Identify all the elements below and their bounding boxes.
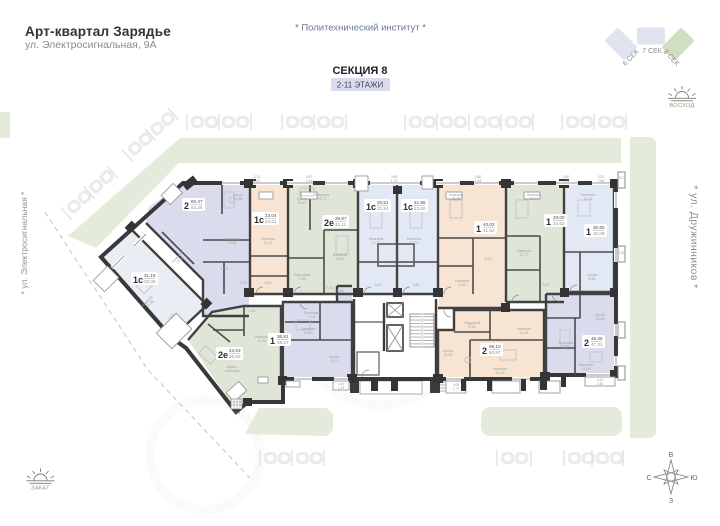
svg-text:С: С	[646, 475, 651, 482]
svg-text:* Политехнический институт *: * Политехнический институт *	[295, 23, 426, 34]
svg-text:62,25: 62,25	[191, 205, 203, 210]
svg-text:32,09: 32,09	[593, 231, 605, 236]
svg-text:1,56: 1,56	[619, 251, 625, 255]
svg-text:38,57: 38,57	[277, 340, 289, 345]
svg-text:11,84: 11,84	[562, 345, 571, 349]
svg-text:11,54: 11,54	[584, 197, 593, 201]
svg-text:8,66: 8,66	[589, 277, 596, 281]
svg-text:1: 1	[546, 217, 551, 227]
svg-text:6,25: 6,25	[485, 257, 492, 261]
svg-text:17,70: 17,70	[372, 241, 381, 245]
svg-text:1с: 1с	[366, 202, 376, 212]
svg-text:15,77: 15,77	[318, 197, 327, 201]
svg-text:40,02: 40,02	[483, 222, 495, 227]
svg-text:В: В	[669, 452, 674, 459]
svg-text:15,75: 15,75	[452, 197, 461, 201]
svg-text:3,81: 3,81	[413, 283, 420, 287]
svg-text:гостиная: гостиная	[225, 369, 240, 373]
svg-text:4,08: 4,08	[337, 289, 344, 293]
svg-text:23,04: 23,04	[265, 213, 277, 218]
svg-text:2,35: 2,35	[299, 277, 306, 281]
svg-text:3,22: 3,22	[619, 176, 625, 180]
svg-text:* ул. Дружинников *: * ул. Дружинников *	[688, 185, 700, 288]
svg-text:5,40: 5,40	[249, 309, 256, 313]
svg-text:1,73: 1,73	[391, 179, 398, 183]
svg-text:2е: 2е	[218, 350, 228, 360]
svg-text:60,87: 60,87	[489, 350, 501, 355]
svg-text:47,31: 47,31	[591, 342, 603, 347]
svg-text:60,47: 60,47	[191, 199, 203, 204]
svg-text:3,41: 3,41	[543, 283, 550, 287]
svg-text:10,06: 10,06	[596, 317, 605, 321]
svg-text:1,44: 1,44	[306, 179, 313, 183]
svg-text:59,10: 59,10	[489, 344, 501, 349]
svg-text:СЕКЦИЯ 8: СЕКЦИЯ 8	[332, 65, 387, 77]
svg-text:45,45: 45,45	[591, 336, 603, 341]
svg-text:22,54: 22,54	[377, 206, 389, 211]
svg-text:11,77: 11,77	[520, 253, 529, 257]
svg-text:1с: 1с	[133, 275, 143, 285]
svg-text:ЗАКАТ: ЗАКАТ	[31, 486, 50, 492]
svg-text:17,23: 17,23	[264, 241, 273, 245]
svg-text:* ул. Электросигнальная *: * ул. Электросигнальная *	[19, 191, 29, 294]
svg-text:41,11: 41,11	[335, 222, 347, 227]
svg-text:8,48: 8,48	[469, 325, 476, 329]
svg-text:5,95: 5,95	[459, 283, 466, 287]
svg-text:ВОСХОД: ВОСХОД	[669, 103, 694, 109]
svg-text:15,02: 15,02	[530, 197, 539, 201]
svg-text:41,53: 41,53	[483, 228, 495, 233]
svg-text:7 СЕК: 7 СЕК	[642, 48, 663, 55]
svg-text:1,64: 1,64	[475, 179, 482, 183]
svg-text:Ю: Ю	[690, 475, 697, 482]
svg-text:1: 1	[476, 224, 481, 234]
svg-text:36,81: 36,81	[277, 334, 289, 339]
svg-text:2е: 2е	[324, 218, 334, 228]
svg-text:21,88: 21,88	[414, 200, 426, 205]
svg-text:ул. Электросигнальная, 9А: ул. Электросигнальная, 9А	[25, 39, 157, 51]
svg-text:11,48: 11,48	[234, 197, 243, 201]
svg-text:23,60: 23,60	[414, 206, 426, 211]
svg-text:15,11: 15,11	[330, 359, 339, 363]
svg-text:1,47: 1,47	[254, 179, 261, 183]
svg-text:10,80: 10,80	[304, 331, 313, 335]
svg-text:1,80: 1,80	[598, 179, 605, 183]
svg-text:46,63: 46,63	[229, 354, 241, 359]
svg-text:2-11 ЭТАЖИ: 2-11 ЭТАЖИ	[337, 81, 384, 90]
svg-text:2: 2	[584, 338, 589, 348]
svg-text:10,08: 10,08	[228, 241, 237, 245]
svg-text:12,09: 12,09	[582, 367, 591, 371]
svg-text:1с: 1с	[403, 202, 413, 212]
svg-text:2: 2	[184, 201, 189, 211]
svg-text:2,04: 2,04	[234, 411, 240, 415]
svg-text:3,75: 3,75	[327, 286, 334, 290]
svg-text:3,25: 3,25	[240, 281, 247, 285]
svg-text:33,05: 33,05	[144, 279, 156, 284]
svg-text:З: З	[669, 498, 673, 505]
svg-text:1с: 1с	[254, 215, 264, 225]
svg-text:30,50: 30,50	[593, 225, 605, 230]
svg-text:1,71: 1,71	[563, 179, 570, 183]
svg-text:2: 2	[482, 346, 487, 356]
svg-text:20,51: 20,51	[377, 200, 389, 205]
svg-text:3,83: 3,83	[265, 281, 272, 285]
svg-text:24,51: 24,51	[265, 219, 277, 224]
svg-text:1,77: 1,77	[453, 387, 459, 391]
svg-text:Арт-квартал Зарядье: Арт-квартал Зарядье	[25, 24, 171, 39]
svg-text:3,41: 3,41	[375, 283, 382, 287]
svg-text:10,47: 10,47	[298, 201, 307, 205]
svg-text:14,83: 14,83	[496, 371, 505, 375]
svg-text:11,98: 11,98	[444, 353, 453, 357]
svg-text:17,70: 17,70	[410, 241, 419, 245]
svg-text:1: 1	[586, 227, 591, 237]
svg-text:1: 1	[270, 336, 275, 346]
svg-text:11,31: 11,31	[258, 339, 267, 343]
svg-text:7,02: 7,02	[309, 315, 316, 319]
svg-text:31,16: 31,16	[144, 273, 156, 278]
svg-text:33,00: 33,00	[553, 215, 565, 220]
svg-text:34,52: 34,52	[553, 221, 565, 226]
svg-text:11,84: 11,84	[520, 331, 529, 335]
svg-text:43,93: 43,93	[229, 348, 241, 353]
svg-text:4,02: 4,02	[221, 267, 228, 271]
svg-text:39,67: 39,67	[335, 216, 347, 221]
svg-text:1,79: 1,79	[338, 386, 344, 390]
svg-text:1,86: 1,86	[597, 382, 603, 386]
svg-text:13,89: 13,89	[336, 257, 345, 261]
